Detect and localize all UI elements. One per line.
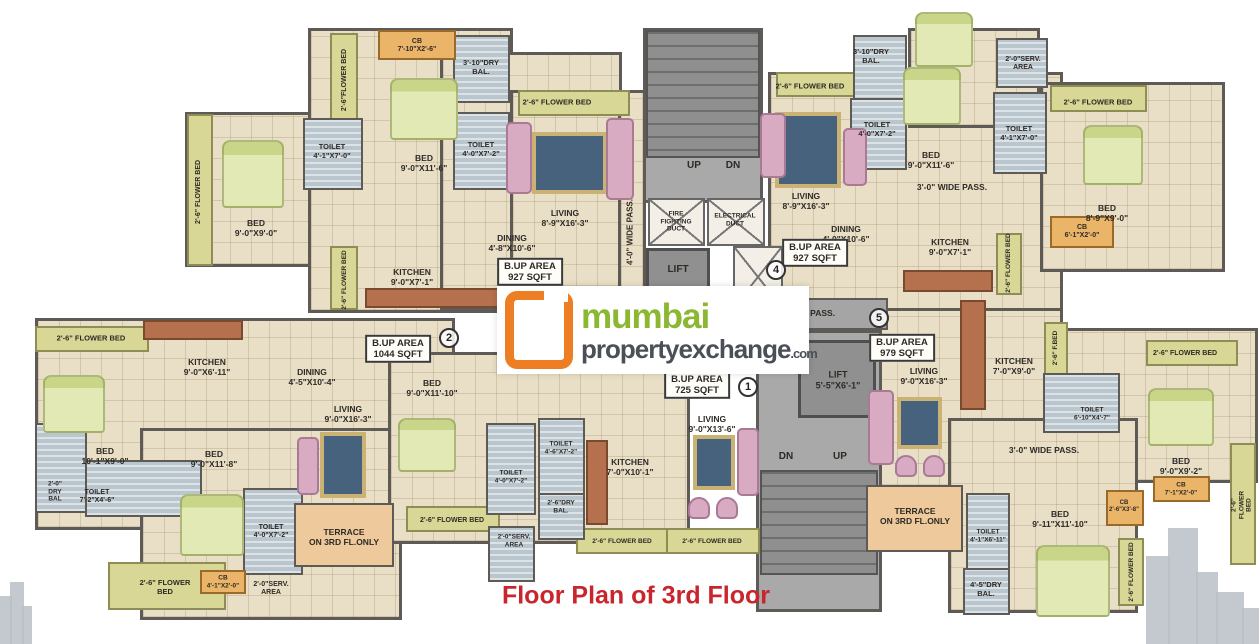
staircase	[646, 30, 760, 158]
area-stat-label: B.UP AREA 979 SQFT	[869, 334, 935, 362]
bed-furniture	[1148, 388, 1214, 446]
unit-number-marker: 2	[439, 328, 459, 348]
room-label: 2'-6" FLOWER BED	[682, 538, 742, 546]
room-label: 2'-0" DRY BAL	[48, 481, 62, 504]
room-label: ELECTRICAL DUCT	[714, 212, 755, 227]
rug	[897, 397, 942, 449]
room-label: BED 9'-0"X11'-8"	[191, 449, 238, 469]
room-label: 2'-6" FLOWER BED	[1231, 491, 1254, 519]
room-label: 3'-10"DRY BAL.	[463, 59, 499, 77]
floor-plan-canvas: mumbai propertyexchange.com Floor Plan o…	[0, 0, 1259, 644]
room-label: 2'-0"SERV. AREA	[498, 533, 531, 548]
kitchen-counter	[903, 270, 993, 292]
room-label: LIFT 5'-5"X6'-1"	[816, 369, 861, 390]
room-label: DINING 4'-5"X10'-4"	[288, 367, 335, 387]
bed-furniture	[390, 78, 458, 140]
room-label: KITCHEN 9'-0"X7'-1"	[391, 267, 433, 287]
city-silhouette	[1242, 608, 1259, 644]
room-label: TOILET 4'-1"X7'-0"	[1000, 125, 1037, 143]
room-label: TERRACE ON 3RD FL.ONLY	[309, 527, 379, 547]
room-label: CB 6'-1"X2'-0"	[1065, 224, 1100, 241]
room-label: TOILET 4'-6"X7'-2"	[545, 440, 577, 455]
bed-furniture	[915, 12, 973, 67]
unit-number-marker: 5	[869, 308, 889, 328]
chair	[923, 455, 945, 477]
room-label: 4'-5"DRY BAL.	[970, 581, 1002, 599]
room-label: 2'-0"SERV. AREA	[1005, 56, 1040, 73]
unit-number-marker: 1	[738, 377, 758, 397]
room-label: TOILET 4'-0"X7'-2"	[462, 141, 499, 159]
bed-furniture	[398, 418, 456, 472]
sofa	[506, 122, 532, 194]
room-label: 2'-6" FLOWER BED	[1153, 350, 1217, 358]
kitchen-counter	[143, 320, 243, 340]
room-label: 2'-6" FLOWER BED	[1005, 233, 1013, 293]
room-label: LIFT	[667, 264, 688, 276]
city-silhouette	[22, 606, 32, 644]
room-label: CB 7'-10"X2'-6"	[398, 38, 437, 55]
room-label: 2'-6"FLOWER BED	[341, 49, 349, 111]
room-label: DN	[779, 451, 793, 463]
room-label: 2'-6" FLOWER BED	[341, 250, 349, 310]
area-stat-label: B.UP AREA 927 SQFT	[782, 239, 848, 267]
room-label: KITCHEN 7'-0"X10'-1"	[606, 457, 653, 477]
area-stat-label: B.UP AREA 927 SQFT	[497, 258, 563, 286]
room-label: BED 9'-0"X9'-0"	[235, 218, 277, 238]
chair	[895, 455, 917, 477]
room-label: KITCHEN 9'-0"X7'-1"	[929, 237, 971, 257]
room-label: CB 2'-6"X3'-8"	[1109, 500, 1139, 514]
sofa	[606, 118, 634, 200]
mumbai-property-exchange-logo: mumbai propertyexchange.com	[497, 286, 809, 374]
chair	[716, 497, 738, 519]
room-label: TOILET 4'-0"X7'-2"	[858, 121, 895, 139]
room-label: 2'-6" FLOWER BED	[776, 83, 845, 92]
logo-brand-line1: mumbai	[581, 299, 817, 334]
city-silhouette	[1146, 556, 1170, 644]
room-label: 2'-6" FLOWER BED	[140, 579, 191, 597]
room-label: BED 10'-1"X9'-0"	[81, 446, 128, 466]
room-label: BED 8'-9"X9'-0"	[1086, 203, 1128, 223]
room-label: 3'-0" WIDE PASS.	[917, 182, 987, 192]
city-silhouette	[1216, 592, 1244, 644]
room-label: TERRACE ON 3RD FL.ONLY	[880, 506, 950, 526]
city-silhouette	[1196, 572, 1218, 644]
rug	[532, 132, 607, 194]
room-label: 4'-0" WIDE PASS.	[625, 199, 634, 265]
room-label: TOILET 4'-1"X7'-0"	[313, 143, 350, 161]
room-label: 2'-6" FLOWER BED	[1064, 99, 1133, 108]
area-stat-label: B.UP AREA 1044 SQFT	[365, 335, 431, 363]
room-label: CB 4'-1"X2'-0"	[207, 574, 239, 589]
unit-number-marker: 4	[766, 260, 786, 280]
room-label: 2'-6"DRY BAL.	[547, 499, 575, 514]
room-label: 2'-6" FLOWER BED	[1128, 542, 1136, 602]
room-label: TOILET 6'-10"X4'-7"	[1074, 406, 1110, 421]
room-label: TOILET 7'-2"X4'-6"	[80, 489, 115, 506]
bed-furniture	[180, 494, 244, 556]
logo-text: mumbai propertyexchange.com	[581, 299, 817, 362]
kitchen-counter	[960, 300, 986, 410]
room-label: 2'-6" FLOWER BED	[57, 335, 126, 344]
rug	[320, 432, 366, 498]
logo-suffix: .com	[790, 346, 816, 361]
room-label: BED 9'-0"X11'-10"	[406, 378, 457, 398]
room-label: LIVING 9'-0"X13'-6"	[688, 414, 735, 434]
room-label: CB 7'-1"X2'-0"	[1165, 481, 1197, 496]
room-label: BED 9'-0"X11'-6"	[908, 150, 955, 170]
room-label: 3'-0" WIDE PASS.	[1009, 445, 1079, 455]
room-label: BED 9'-0"X11'-6"	[401, 153, 448, 173]
logo-brand-line2: propertyexchange.com	[581, 336, 817, 362]
room-label: 2'-6" FLOWER BED	[195, 160, 203, 224]
bed-furniture	[1083, 125, 1143, 185]
wet-area	[538, 418, 585, 495]
chair	[688, 497, 710, 519]
room-label: TOILET 4'-0"X7'-2"	[495, 469, 527, 484]
room-label: DN	[726, 160, 740, 172]
sofa	[868, 390, 894, 465]
room-label: 2'-6" FLOWER BED	[523, 99, 592, 108]
room-label: 2'-6" F.BED	[1052, 331, 1060, 366]
wet-area	[1043, 373, 1120, 433]
bed-furniture	[222, 140, 284, 208]
sofa	[760, 113, 786, 178]
logo-orange-square-icon	[505, 291, 573, 369]
sofa	[737, 428, 759, 496]
bed-furniture	[43, 375, 105, 433]
room-label: TOILET 4'-0"X7'-2"	[254, 524, 289, 541]
bed-furniture	[903, 67, 961, 125]
room-label: LIVING 9'-0"X16'-3"	[900, 366, 947, 386]
area-stat-label: B.UP AREA 725 SQFT	[664, 371, 730, 399]
rug	[693, 435, 735, 490]
room-label: FIRE FIGHTING DUCT	[660, 211, 691, 234]
room-label: 3'-10"DRY BAL.	[853, 48, 889, 66]
room-label: DINING 4'-8"X10'-6"	[488, 233, 535, 253]
room-label: TOILET 4'-1"X6'-11"	[970, 528, 1006, 543]
room-label: UP	[687, 160, 701, 172]
room-label: LIVING 8'-9"X16'-3"	[541, 208, 588, 228]
room-label: KITCHEN 9'-0"X6'-11"	[184, 357, 231, 377]
room-label: 2'-6" FLOWER BED	[592, 538, 652, 546]
city-silhouette	[1168, 528, 1198, 644]
bed-furniture	[1036, 545, 1110, 617]
room-label: UP	[833, 451, 847, 463]
room-label: 2'-0"SERV. AREA	[253, 581, 288, 598]
room-label: 2'-6" FLOWER BED	[420, 517, 484, 525]
sofa	[297, 437, 319, 495]
room-label: LIVING 8'-9"X16'-3"	[782, 191, 829, 211]
room-label: KITCHEN 7'-0"X9'-0"	[993, 356, 1035, 376]
room-label: LIVING 9'-0"X16'-3"	[324, 404, 371, 424]
kitchen-counter	[365, 288, 500, 308]
room-label: BED 9'-11"X11'-10"	[1032, 509, 1088, 529]
staircase	[760, 470, 878, 575]
room-label: BED 9'-0"X9'-2"	[1160, 456, 1202, 476]
kitchen-counter	[586, 440, 608, 525]
floor-plan-caption: Floor Plan of 3rd Floor	[502, 582, 770, 611]
